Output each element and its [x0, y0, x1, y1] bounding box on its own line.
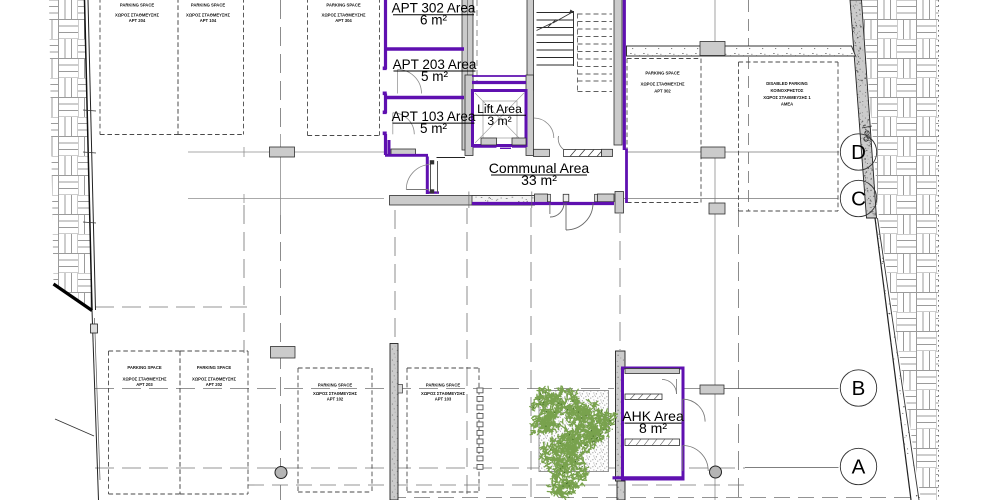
svg-text:ΧΩΡΟΣ ΣΤΑΘΜΕΥΣΗΣ: ΧΩΡΟΣ ΣΤΑΘΜΕΥΣΗΣ	[186, 13, 230, 18]
svg-text:ΧΩΡΟΣ ΣΤΑΘΜΕΥΣΗΣ 1: ΧΩΡΟΣ ΣΤΑΘΜΕΥΣΗΣ 1	[763, 95, 811, 100]
svg-text:APT 203: APT 203	[136, 382, 153, 387]
svg-text:ΧΩΡΟΣ ΣΤΑΘΜΕΥΣΗΣ: ΧΩΡΟΣ ΣΤΑΘΜΕΥΣΗΣ	[115, 13, 159, 18]
svg-text:3 m²: 3 m²	[487, 114, 511, 128]
svg-text:APT 202: APT 202	[206, 382, 223, 387]
svg-text:APT 302: APT 302	[654, 88, 671, 93]
svg-text:APT 103: APT 103	[435, 397, 452, 402]
svg-text:8 m²: 8 m²	[639, 420, 667, 436]
svg-text:C: C	[851, 188, 866, 211]
svg-text:APT 104: APT 104	[200, 18, 217, 23]
svg-text:PARKING SPACE: PARKING SPACE	[426, 383, 460, 388]
svg-text:5 m²: 5 m²	[421, 69, 449, 84]
svg-text:DISABLED PARKING: DISABLED PARKING	[766, 81, 808, 86]
svg-text:D: D	[851, 141, 866, 164]
svg-text:ΧΩΡΟΣ ΣΤΑΘΜΕΥΣΗΣ: ΧΩΡΟΣ ΣΤΑΘΜΕΥΣΗΣ	[322, 13, 366, 18]
svg-text:33 m²: 33 m²	[521, 172, 557, 188]
svg-text:5 m²: 5 m²	[420, 121, 448, 136]
svg-text:PARKING SPACE: PARKING SPACE	[120, 3, 154, 8]
svg-text:B: B	[852, 377, 866, 400]
svg-text:ΧΩΡΟΣ ΣΤΑΘΜΕΥΣΗΣ: ΧΩΡΟΣ ΣΤΑΘΜΕΥΣΗΣ	[192, 377, 236, 382]
svg-text:ΧΩΡΟΣ ΣΤΑΘΜΕΥΣΗΣ: ΧΩΡΟΣ ΣΤΑΘΜΕΥΣΗΣ	[123, 377, 167, 382]
svg-text:APT 304: APT 304	[335, 18, 352, 23]
svg-text:ΧΩΡΟΣ ΣΤΑΘΜΕΥΣΗΣ: ΧΩΡΟΣ ΣΤΑΘΜΕΥΣΗΣ	[421, 391, 465, 396]
svg-text:PARKING SPACE: PARKING SPACE	[326, 3, 360, 8]
svg-text:APT 204: APT 204	[129, 18, 146, 23]
svg-text:PARKING SPACE: PARKING SPACE	[318, 383, 352, 388]
svg-text:APT 102: APT 102	[327, 397, 344, 402]
svg-text:PARKING SPACE: PARKING SPACE	[645, 71, 679, 76]
svg-text:PARKING SPACE: PARKING SPACE	[191, 3, 225, 8]
svg-text:ΧΩΡΟΣ ΣΤΑΘΜΕΥΣΗΣ: ΧΩΡΟΣ ΣΤΑΘΜΕΥΣΗΣ	[313, 391, 357, 396]
svg-text:ΧΩΡΟΣ ΣΤΑΘΜΕΥΣΗΣ: ΧΩΡΟΣ ΣΤΑΘΜΕΥΣΗΣ	[641, 82, 685, 87]
svg-text:PARKING SPACE: PARKING SPACE	[127, 365, 161, 370]
svg-text:ΑΜΕΑ: ΑΜΕΑ	[781, 102, 793, 107]
svg-text:ΚΟΙΝΟΧΡΗΣΤΟΣ: ΚΟΙΝΟΧΡΗΣΤΟΣ	[771, 88, 804, 93]
svg-text:PARKING SPACE: PARKING SPACE	[197, 365, 231, 370]
svg-text:6 m²: 6 m²	[420, 13, 448, 28]
svg-text:A: A	[852, 456, 866, 479]
